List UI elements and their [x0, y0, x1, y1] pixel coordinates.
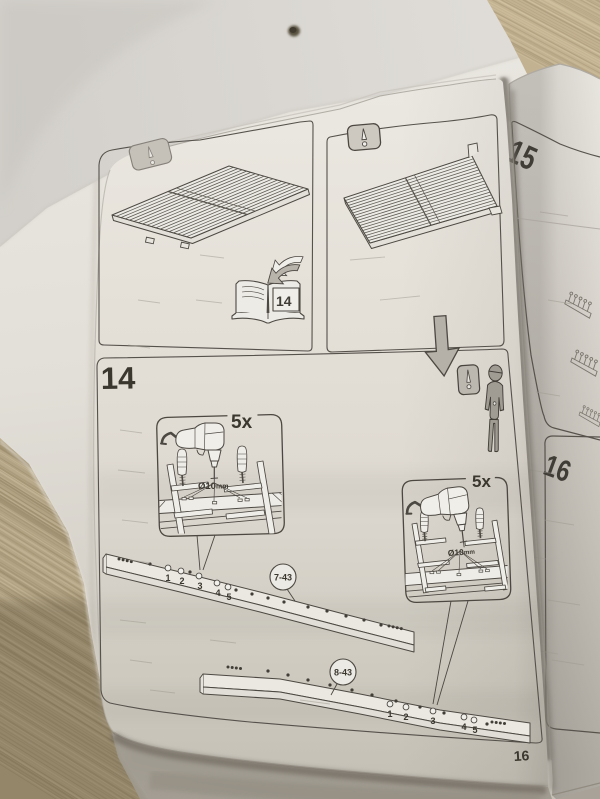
svg-text:5x: 5x [231, 412, 253, 433]
svg-text:3: 3 [197, 581, 202, 591]
svg-text:2: 2 [403, 712, 408, 722]
svg-text:4: 4 [461, 722, 466, 732]
svg-text:16: 16 [513, 747, 530, 764]
svg-text:14: 14 [276, 293, 292, 309]
svg-text:7-43: 7-43 [274, 573, 292, 583]
svg-text:1: 1 [387, 709, 392, 719]
svg-text:2: 2 [179, 576, 184, 586]
svg-text:5x: 5x [472, 472, 491, 491]
svg-text:14: 14 [101, 360, 137, 396]
svg-text:5: 5 [472, 725, 477, 735]
svg-text:3: 3 [430, 716, 435, 726]
svg-text:1: 1 [165, 573, 170, 583]
svg-text:8-43: 8-43 [334, 668, 352, 678]
svg-text:5: 5 [226, 592, 231, 602]
svg-text:4: 4 [215, 588, 220, 598]
